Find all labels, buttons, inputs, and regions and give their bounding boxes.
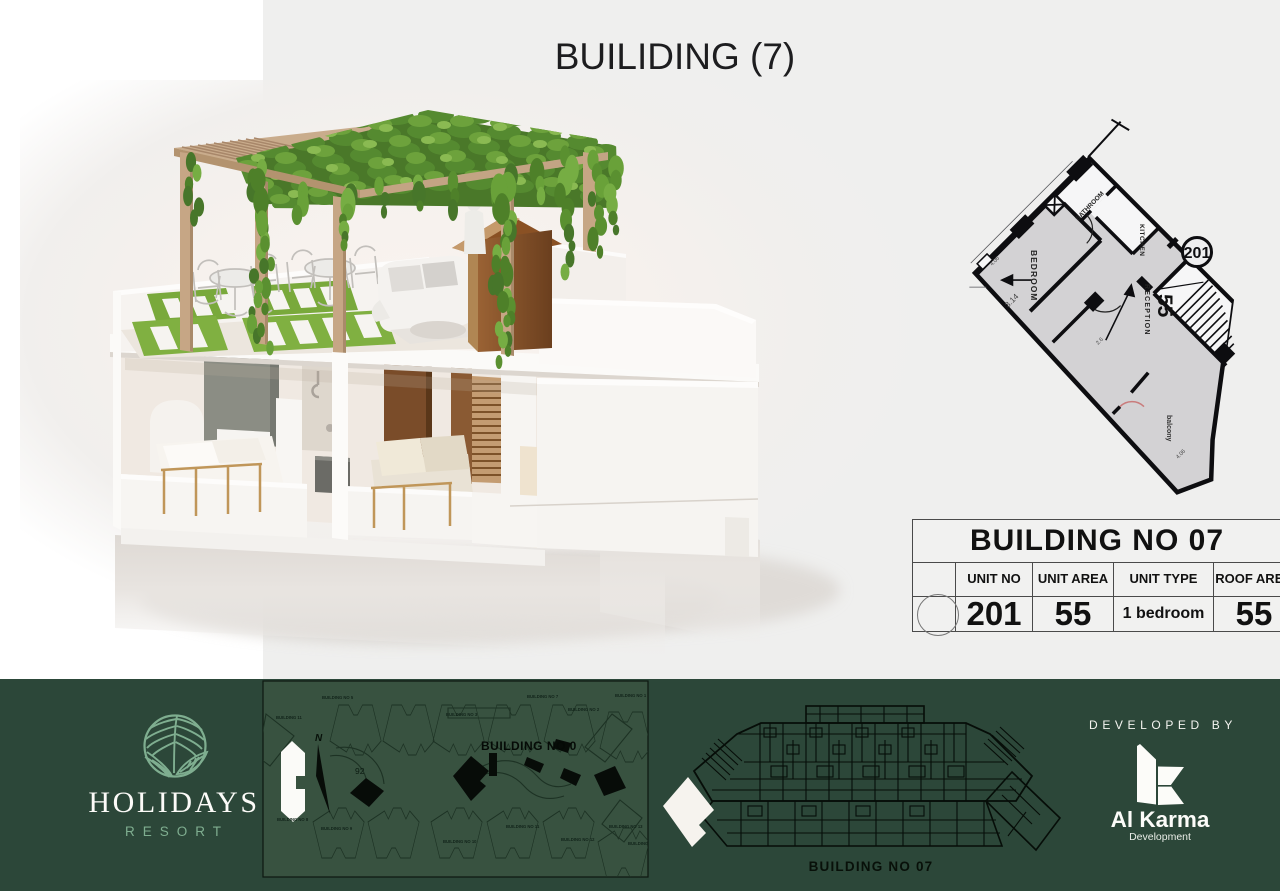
svg-text:92: 92 [355,766,365,776]
svg-text:BUILDING NO 07: BUILDING NO 07 [809,859,934,874]
svg-text:RESORT: RESORT [125,824,229,839]
svg-text:BUILDING NO 12: BUILDING NO 12 [561,837,595,842]
svg-text:N: N [315,733,323,744]
svg-text:DEVELOPED BY: DEVELOPED BY [1089,718,1237,732]
svg-text:HOLIDAYS: HOLIDAYS [88,786,259,819]
svg-text:BUILDING NO 10: BUILDING NO 10 [443,839,477,844]
svg-text:BEDROOM: BEDROOM [1029,250,1039,301]
svg-text:Al Karma: Al Karma [1111,807,1210,832]
svg-text:KITCHEN: KITCHEN [1138,224,1145,256]
svg-text:BUILDING NO 8: BUILDING NO 8 [277,817,309,822]
svg-text:BUILDING NO 1: BUILDING NO 1 [615,693,647,698]
svg-text:BUILDING NO 9: BUILDING NO 9 [321,826,353,831]
svg-text:BUILDING NO 3: BUILDING NO 3 [446,712,478,717]
svg-text:BUILDING NO 7: BUILDING NO 7 [527,694,559,699]
svg-text:BUILDING NO 13: BUILDING NO 13 [609,824,643,829]
svg-text:Development: Development [1129,831,1191,843]
svg-text:balcony: balcony [1165,415,1172,442]
svg-text:BUILDING NO 0: BUILDING NO 0 [481,739,577,753]
svg-text:201: 201 [1184,245,1211,262]
svg-text:BUILDING 11: BUILDING 11 [276,715,302,720]
svg-text:BUILDING NO 14: BUILDING NO 14 [628,841,662,846]
svg-text:55: 55 [1153,294,1176,318]
svg-text:BUILDING NO 11: BUILDING NO 11 [506,824,540,829]
svg-text:BUILDING NO 5: BUILDING NO 5 [322,695,354,700]
svg-text:BUILDING NO 2: BUILDING NO 2 [568,707,600,712]
svg-text:RECEPTION: RECEPTION [1143,284,1150,336]
